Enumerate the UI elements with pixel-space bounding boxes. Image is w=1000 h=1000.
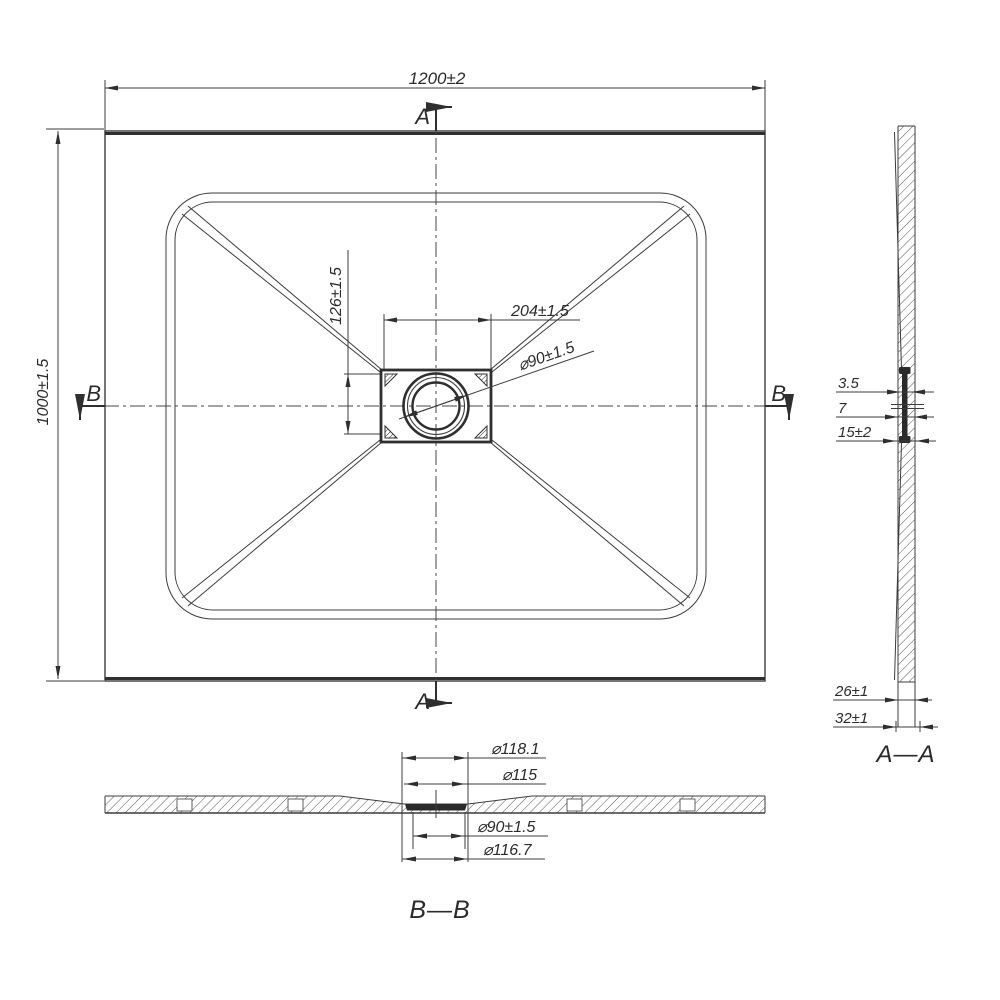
aa-dim-lip-label: 3.5 <box>838 375 860 392</box>
section-letter-b: B <box>771 381 786 406</box>
section-bb-view: ⌀118.1 ⌀115 ⌀90±1.5 ⌀116.7 B—B <box>105 741 765 924</box>
bb-drain-trap <box>405 790 467 849</box>
bb-foot-notch <box>567 799 582 811</box>
section-marker-a-bottom: A <box>413 681 452 714</box>
aa-dim-base-32: 32±1 <box>833 710 938 732</box>
aa-dim-lip-3-5: 3.5 <box>836 375 934 392</box>
dim-width-label: 1200±2 <box>409 69 466 88</box>
section-aa-view: 3.5 7 15±2 26±1 32±1 A—A <box>833 126 938 768</box>
bb-dim-d3-label: ⌀90±1.5 <box>477 819 536 836</box>
dim-drain-height-label: 126±1.5 <box>328 267 345 325</box>
dim-drain-diameter-label: ⌀90±1.5 <box>516 339 577 374</box>
section-letter-b: B <box>86 381 101 406</box>
bb-dim-118: ⌀118.1 <box>402 741 546 758</box>
dim-height-label: 1000±1.5 <box>35 359 52 426</box>
shower-tray-drawing: 1200±2 1000±1.5 204±1.5 126±1.5 <box>0 0 1000 1000</box>
aa-drain-flange <box>891 367 924 443</box>
section-marker-a-top: A <box>413 104 452 131</box>
section-letter-a: A <box>413 689 430 714</box>
drain-corner-pad <box>475 374 487 386</box>
bb-dim-d4-label: ⌀116.7 <box>483 842 533 859</box>
aa-dim-base-26: 26±1 <box>833 683 932 700</box>
aa-dim-flange-15: 15±2 <box>836 424 936 441</box>
plan-view: 1200±2 1000±1.5 204±1.5 126±1.5 <box>35 69 791 714</box>
bb-dim-90: ⌀90±1.5 <box>413 819 548 836</box>
bb-foot-notch <box>680 799 695 811</box>
drain-corner-pad <box>385 426 397 438</box>
aa-dim-flange-label: 15±2 <box>838 424 872 441</box>
section-marker-b-right: B <box>765 381 789 420</box>
technical-drawing-page: 1200±2 1000±1.5 204±1.5 126±1.5 <box>0 0 1000 1000</box>
drain-corner-pad <box>385 374 397 386</box>
bb-dim-d1-label: ⌀118.1 <box>491 741 539 758</box>
bb-foot-notch <box>288 799 303 811</box>
section-letter-a: A <box>413 104 430 129</box>
bb-dim-116: ⌀116.7 <box>402 842 545 859</box>
section-marker-b-left: B <box>80 381 105 420</box>
bb-dim-d2-label: ⌀115 <box>502 767 537 784</box>
aa-dim-base-inner-label: 26±1 <box>834 683 868 700</box>
drain-corner-pad <box>475 426 487 438</box>
aa-dim-wall-label: 7 <box>838 400 847 417</box>
aa-dim-base-outer-label: 32±1 <box>835 710 868 727</box>
section-aa-title: A—A <box>874 741 935 768</box>
bb-foot-notch <box>177 799 192 811</box>
section-bb-title: B—B <box>409 896 470 924</box>
dim-drain-width-label: 204±1.5 <box>510 303 569 320</box>
bb-dim-115: ⌀115 <box>404 767 546 784</box>
